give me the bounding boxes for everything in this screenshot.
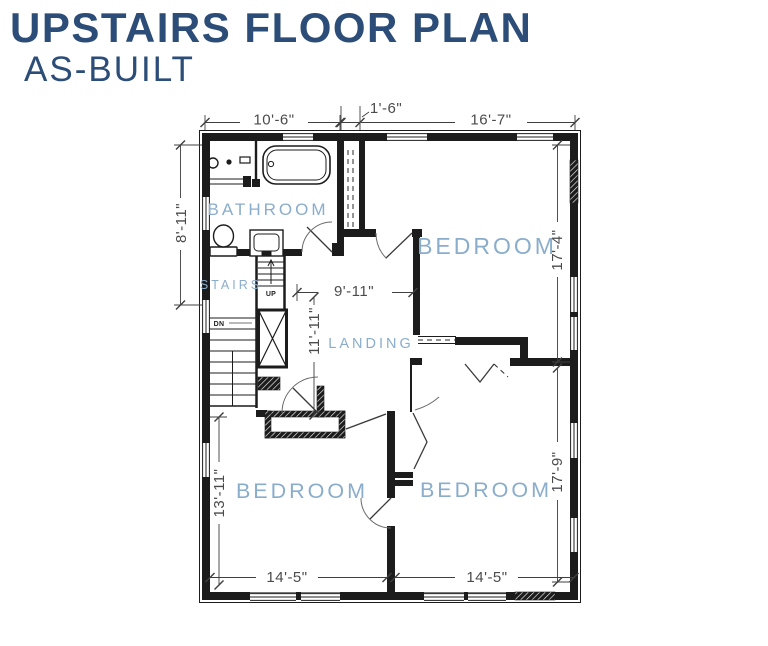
- wall-divider-stub-a: [395, 472, 413, 478]
- room-label-bedroom-bottom-right: BEDROOM: [420, 478, 552, 502]
- chase-box: [259, 310, 287, 367]
- window-south-4: [468, 593, 506, 602]
- dimension-left-bedroom-text: 13'-11": [211, 469, 228, 518]
- room-label-bathroom: BATHROOM: [208, 200, 329, 219]
- room-label-bedroom-bottom-left: BEDROOM: [236, 479, 368, 503]
- shower-fixtures: [208, 157, 251, 187]
- window-south-2: [301, 593, 340, 602]
- stair-treads-down: [209, 318, 256, 406]
- dimension-top-left-text: 10'-6": [253, 112, 294, 129]
- window-north-bedroom-1: [387, 133, 427, 142]
- dimension-left-bathroom: 8'-11": [173, 141, 202, 310]
- floor-plan: UP DN: [0, 0, 768, 646]
- window-south-1: [250, 593, 296, 602]
- window-east-bedroom-top: [570, 277, 579, 350]
- wall-bedroom-tr-south-a: [344, 229, 376, 237]
- stair-down-label: DN: [214, 321, 225, 328]
- bedroom-br-door: [413, 397, 439, 469]
- dimension-bottom-left: 14'-5": [206, 569, 392, 586]
- wall-bottom-divider-upper: [387, 411, 395, 498]
- dimension-left-bedroom: 13'-11": [210, 413, 228, 590]
- dimension-top-right-text: 16'-7": [470, 112, 511, 129]
- dimension-left-bathroom-text: 8'-11": [173, 203, 190, 243]
- dimension-bottom-right: 14'-5": [391, 569, 579, 586]
- dimension-landing-height-text: 11'-11": [306, 307, 323, 355]
- room-label-bedroom-top-right: BEDROOM: [417, 233, 557, 259]
- bathroom-fixtures: [208, 140, 330, 256]
- dimension-right-lower: 17'-9": [549, 364, 570, 587]
- window-north-bedroom-2: [517, 133, 553, 142]
- sink-faucet: [262, 251, 272, 256]
- window-north-bathroom: [283, 133, 313, 142]
- wall-below-chase: [258, 377, 280, 390]
- landing-stairs-door: [282, 377, 318, 413]
- bedroom-tr-door: [376, 233, 412, 259]
- wall-hatch-south: [515, 592, 555, 600]
- toilet: [210, 225, 237, 256]
- dimension-bottom-right-text: 14'-5": [466, 569, 507, 586]
- bedroom-bl-door: [346, 414, 386, 429]
- window-east-bedroom-low: [570, 518, 579, 552]
- room-label-landing: LANDING: [328, 336, 413, 352]
- wall-divider-stub-b: [395, 480, 413, 486]
- dimension-bottom-left-text: 14'-5": [266, 569, 307, 586]
- wall-closet-strip-east: [359, 133, 365, 233]
- dimension-top-middle: 1'-6": [337, 100, 403, 130]
- window-south-3: [424, 593, 464, 602]
- dimension-landing-width-text: 9'-11": [334, 283, 374, 300]
- bathroom-door: [302, 222, 332, 252]
- stair-up-label: UP: [266, 291, 276, 298]
- wall-closet-mr-south-stub: [410, 358, 422, 365]
- wall-bathroom-door-jamb: [332, 243, 344, 256]
- window-west-stairs: [202, 300, 211, 333]
- wall-hatch-east: [570, 160, 578, 203]
- closet-bottom-left: [265, 411, 345, 438]
- closet-mr-bifold-door: [465, 364, 508, 382]
- wall-bathroom-east: [337, 133, 344, 243]
- bathtub: [252, 140, 330, 187]
- wall-closet-mr-north: [455, 337, 528, 345]
- dimension-top-middle-text: 1'-6": [370, 100, 402, 117]
- window-east-bedroom-mid: [570, 423, 579, 458]
- dimension-top-left: 10'-6": [201, 112, 345, 131]
- sink: [250, 230, 283, 256]
- dimension-landing-width: 9'-11": [293, 283, 418, 301]
- room-label-stairs: STAIRS: [200, 278, 262, 292]
- window-west-bedroom: [202, 443, 211, 477]
